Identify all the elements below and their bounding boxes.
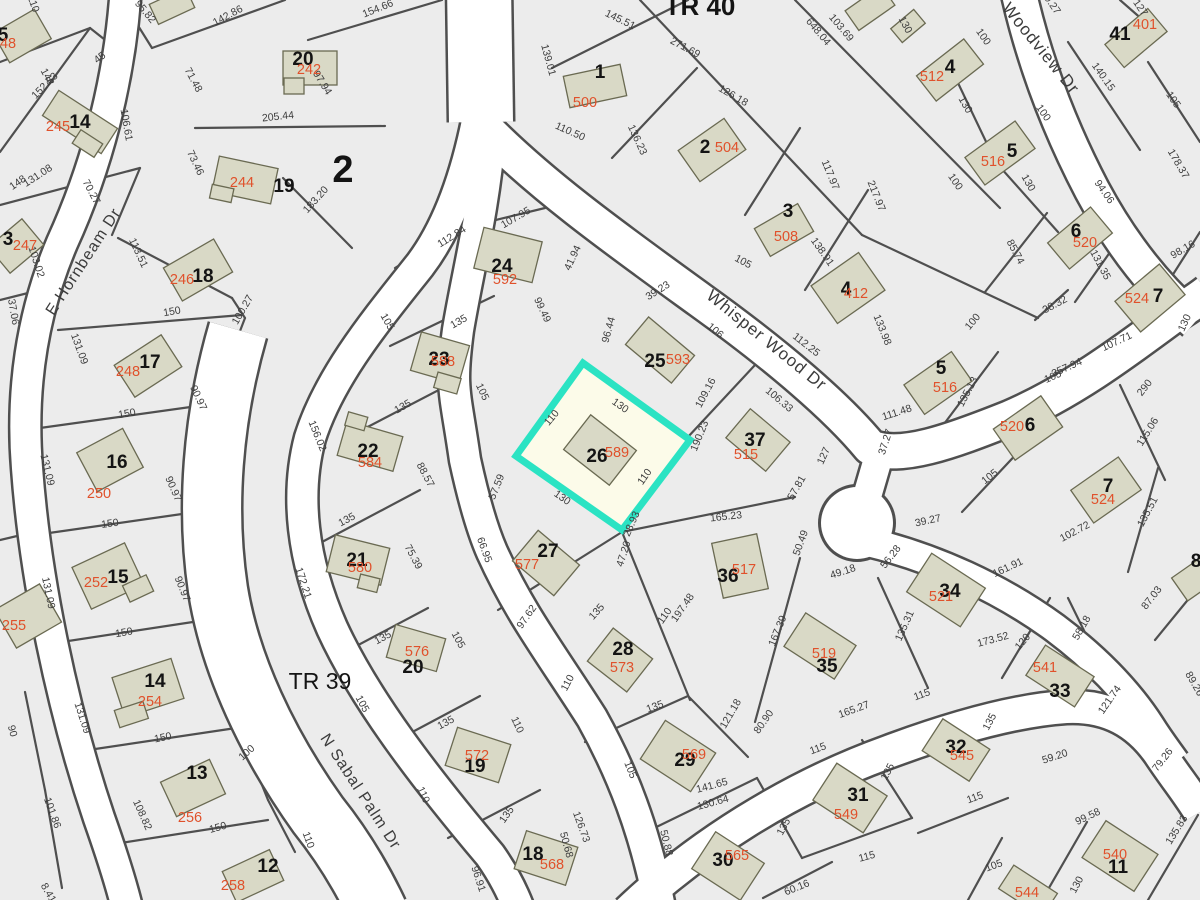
house-number: 254	[138, 694, 162, 710]
house-number: 512	[920, 69, 944, 85]
house-number: 592	[493, 272, 517, 288]
lot-number[interactable]: 17	[139, 352, 160, 373]
lot-number[interactable]: 14	[144, 671, 166, 692]
lot-number[interactable]: 3	[783, 201, 794, 222]
house-number: 48	[0, 36, 16, 52]
house-number: 258	[221, 878, 245, 894]
house-number: 568	[540, 857, 564, 873]
house-number: 252	[84, 575, 108, 591]
house-number: 515	[734, 447, 758, 463]
house-number: 576	[405, 644, 429, 660]
house-number: 508	[774, 229, 798, 245]
house-number: 580	[348, 560, 372, 576]
lot-number[interactable]: 6	[1025, 415, 1036, 436]
house-number: 589	[605, 445, 629, 461]
lot-number[interactable]: 33	[1049, 681, 1070, 702]
lot-number[interactable]: 31	[847, 785, 869, 806]
culdesac-bulb	[821, 487, 893, 559]
house-number: 549	[834, 807, 858, 823]
lot-number[interactable]: 41	[1109, 24, 1131, 45]
lot-number[interactable]: 16	[106, 452, 127, 473]
lot-number[interactable]: 13	[186, 763, 207, 784]
house-number: 516	[933, 380, 957, 396]
house-number: 565	[725, 848, 749, 864]
house-number: 541	[1033, 660, 1057, 676]
lot-number[interactable]: 7	[1153, 286, 1164, 307]
tract-label: 2	[332, 149, 353, 191]
house-number: 544	[1015, 885, 1039, 900]
house-number: 242	[297, 62, 321, 78]
house-number: 540	[1103, 847, 1127, 863]
lot-number[interactable]: 19	[273, 176, 294, 197]
house-number: 500	[573, 95, 597, 111]
house-number: 244	[230, 175, 254, 191]
house-number: 577	[515, 557, 539, 573]
lot-number[interactable]: 18	[192, 266, 213, 287]
lot-number[interactable]: 15	[107, 567, 129, 588]
parcel-map: 11095.82142.86154.6645152.83148106.61131…	[0, 0, 1200, 900]
lot-number[interactable]: 8	[1191, 551, 1200, 572]
house-number: 569	[682, 747, 706, 763]
house-number: 401	[1133, 17, 1157, 33]
house-number: 248	[116, 364, 140, 380]
house-number: 245	[46, 119, 70, 135]
house-number: 593	[666, 352, 690, 368]
house-number: 504	[715, 140, 739, 156]
lot-number[interactable]: 5	[936, 358, 947, 379]
house-number: 584	[358, 455, 382, 471]
lot-number[interactable]: 2	[700, 137, 711, 158]
house-number: 545	[950, 748, 974, 764]
house-number: 524	[1125, 291, 1149, 307]
house-number: 520	[1073, 235, 1097, 251]
tract-label: TR 39	[289, 668, 352, 694]
house-number: 573	[610, 660, 634, 676]
lot-number[interactable]: 3	[3, 229, 14, 250]
house-number: 521	[929, 589, 953, 605]
house-number: 520	[1000, 419, 1024, 435]
lot-number[interactable]: 4	[945, 57, 956, 78]
house-number: 517	[732, 562, 756, 578]
lot-number[interactable]: 5	[1007, 141, 1018, 162]
house-number: 255	[2, 618, 26, 634]
house-number: 516	[981, 154, 1005, 170]
house-number: 588	[431, 354, 455, 370]
tract-label: TR 40	[665, 0, 736, 21]
lot-number[interactable]: 27	[537, 541, 558, 562]
lot-number[interactable]: 25	[644, 351, 666, 372]
map-canvas: 11095.82142.86154.6645152.83148106.61131…	[0, 0, 1200, 900]
house-number: 246	[170, 272, 194, 288]
house-number: 250	[87, 486, 111, 502]
house-number: 412	[844, 286, 868, 302]
lot-number[interactable]: 12	[257, 856, 278, 877]
house-number: 524	[1091, 492, 1115, 508]
dimension-label: 150	[100, 517, 119, 531]
house-number: 572	[465, 748, 489, 764]
house-number: 519	[812, 646, 836, 662]
lot-number[interactable]: 1	[595, 62, 606, 83]
house-number: 256	[178, 810, 202, 826]
lot-number[interactable]: 14	[69, 112, 91, 133]
house-number: 247	[13, 238, 37, 254]
lot-number[interactable]: 20	[402, 657, 423, 678]
building-wing	[284, 78, 304, 94]
lot-number[interactable]: 28	[612, 639, 633, 660]
